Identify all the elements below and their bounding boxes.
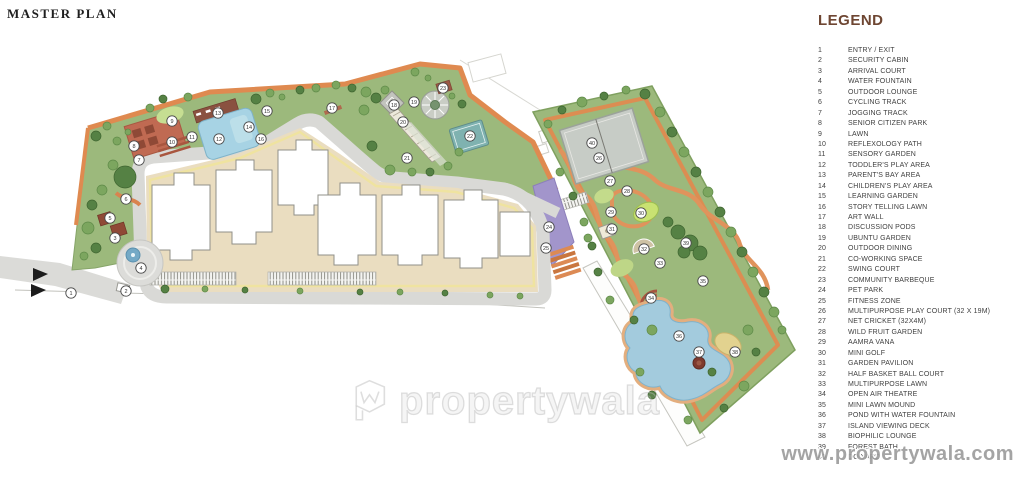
- legend-item-label: STORY TELLING LAWN: [848, 203, 1016, 213]
- tree-icon: [693, 246, 707, 260]
- plan-marker-6: 6: [121, 194, 131, 204]
- legend-item-label: CHILDREN'S PLAY AREA: [848, 182, 1016, 192]
- svg-text:16: 16: [258, 137, 264, 143]
- svg-text:2: 2: [124, 289, 127, 295]
- legend-row: 13 PARENT'S BAY AREA: [818, 171, 1016, 181]
- tree-icon: [769, 307, 779, 317]
- svg-text:35: 35: [700, 279, 706, 285]
- legend-row: 6 CYCLING TRACK: [818, 98, 1016, 108]
- plan-marker-14: 14: [244, 122, 254, 132]
- legend-item-number: 11: [818, 150, 848, 160]
- tree-icon: [146, 104, 154, 112]
- svg-text:14: 14: [246, 125, 252, 131]
- legend-item-label: PET PARK: [848, 286, 1016, 296]
- tree-icon: [371, 93, 381, 103]
- tree-icon: [752, 348, 760, 356]
- tree-icon: [703, 187, 713, 197]
- legend-item-label: TODDLER'S PLAY AREA: [848, 161, 1016, 171]
- legend-row: 17 ART WALL: [818, 213, 1016, 223]
- tree-icon: [397, 289, 403, 295]
- legend-row: 22 SWING COURT: [818, 265, 1016, 275]
- legend-item-number: 38: [818, 432, 848, 442]
- plan-marker-25: 25: [541, 243, 551, 253]
- tree-icon: [778, 326, 786, 334]
- tree-icon: [726, 227, 736, 237]
- legend-item-number: 23: [818, 276, 848, 286]
- tree-icon: [594, 268, 602, 276]
- plan-marker-2: 2: [121, 286, 131, 296]
- tree-icon: [679, 147, 689, 157]
- tree-icon: [584, 234, 592, 242]
- tree-icon: [426, 168, 434, 176]
- tree-icon: [91, 131, 101, 141]
- tree-icon: [242, 287, 248, 293]
- legend-item-number: 14: [818, 182, 848, 192]
- tree-icon: [556, 168, 564, 176]
- legend-item-number: 20: [818, 244, 848, 254]
- tree-icon: [87, 200, 97, 210]
- plan-marker-1: 1: [66, 288, 76, 298]
- svg-text:10: 10: [169, 140, 175, 146]
- plan-marker-34: 34: [646, 293, 656, 303]
- plan-marker-31: 31: [607, 224, 617, 234]
- svg-text:39: 39: [683, 241, 689, 247]
- svg-text:34: 34: [648, 296, 654, 302]
- svg-text:19: 19: [411, 100, 417, 106]
- hedge-row: [268, 272, 376, 285]
- master-plan-svg: 1234567891011121314151617181920212223242…: [0, 0, 812, 480]
- tree-icon: [708, 368, 716, 376]
- tree-icon: [715, 207, 725, 217]
- legend-item-label: NET CRICKET (32X4M): [848, 317, 1016, 327]
- tree-icon: [720, 404, 728, 412]
- tree-icon: [91, 243, 101, 253]
- legend-item-label: SWING COURT: [848, 265, 1016, 275]
- exit-arrow-icon: [31, 284, 46, 297]
- svg-text:17: 17: [329, 106, 335, 112]
- legend-row: 3 ARRIVAL COURT: [818, 67, 1016, 77]
- svg-text:38: 38: [732, 350, 738, 356]
- svg-text:32: 32: [641, 247, 647, 253]
- legend-item-label: POND WITH WATER FOUNTAIN: [848, 411, 1016, 421]
- tree-icon: [297, 288, 303, 294]
- legend-item-number: 34: [818, 390, 848, 400]
- tree-icon: [455, 148, 463, 156]
- legend-item-number: 29: [818, 338, 848, 348]
- tree-icon: [636, 368, 644, 376]
- legend-row: 38 BIOPHILIC LOUNGE: [818, 432, 1016, 442]
- legend-item-label: CO-WORKING SPACE: [848, 255, 1016, 265]
- legend-row: 12 TODDLER'S PLAY AREA: [818, 161, 1016, 171]
- legend-row: 35 MINI LAWN MOUND: [818, 401, 1016, 411]
- tree-icon: [748, 267, 758, 277]
- svg-text:27: 27: [607, 179, 613, 185]
- legend-item-number: 30: [818, 349, 848, 359]
- tree-icon: [569, 192, 577, 200]
- svg-text:13: 13: [215, 111, 221, 117]
- legend-item-label: ISLAND VIEWING DECK: [848, 422, 1016, 432]
- tree-icon: [667, 127, 677, 137]
- legend-row: 31 GARDEN PAVILION: [818, 359, 1016, 369]
- tree-icon: [82, 222, 94, 234]
- tree-icon: [367, 141, 377, 151]
- tree-icon: [684, 416, 692, 424]
- site-plan: 1234567891011121314151617181920212223242…: [0, 0, 812, 480]
- tree-icon: [359, 105, 369, 115]
- legend-row: 11 SENSORY GARDEN: [818, 150, 1016, 160]
- tree-icon: [184, 93, 192, 101]
- tree-icon: [739, 381, 749, 391]
- legend-row: 26 MULTIPURPOSE PLAY COURT (32 X 19M): [818, 307, 1016, 317]
- tree-icon: [251, 94, 261, 104]
- tree-icon: [655, 107, 665, 117]
- tree-icon: [108, 160, 118, 170]
- svg-text:20: 20: [400, 120, 406, 126]
- plan-marker-20: 20: [398, 117, 408, 127]
- tree-icon: [622, 86, 630, 94]
- legend-row: 23 COMMUNITY BARBEQUE: [818, 276, 1016, 286]
- plan-marker-39: 39: [681, 238, 691, 248]
- tree-icon: [691, 167, 701, 177]
- tree-icon: [487, 292, 493, 298]
- master-plan-page: { "page": { "title": "MASTER PLAN" }, "l…: [0, 0, 1020, 480]
- building: [444, 190, 498, 268]
- legend-row: 16 STORY TELLING LAWN: [818, 203, 1016, 213]
- legend-row: 20 OUTDOOR DINING: [818, 244, 1016, 254]
- plan-marker-36: 36: [674, 331, 684, 341]
- svg-text:24: 24: [546, 225, 552, 231]
- legend-rows: 1 ENTRY / EXIT 2 SECURITY CABIN 3 ARRIVA…: [818, 46, 1016, 464]
- legend-item-number: 8: [818, 119, 848, 129]
- legend-item-number: 12: [818, 161, 848, 171]
- svg-text:6: 6: [124, 197, 127, 203]
- building: [500, 212, 530, 256]
- svg-text:4: 4: [139, 266, 142, 272]
- hedge-row: [150, 272, 236, 285]
- plan-marker-9: 9: [167, 116, 177, 126]
- tree-icon: [357, 289, 363, 295]
- plan-marker-5: 5: [105, 213, 115, 223]
- tree-icon: [558, 106, 566, 114]
- plan-marker-38: 38: [730, 347, 740, 357]
- plan-marker-32: 32: [639, 244, 649, 254]
- legend-item-number: 1: [818, 46, 848, 56]
- legend-item-number: 4: [818, 77, 848, 87]
- tree-icon: [759, 287, 769, 297]
- plan-marker-15: 15: [262, 106, 272, 116]
- tree-icon: [647, 325, 657, 335]
- legend-row: 39 FOREST BATH: [818, 443, 1016, 453]
- legend-item-number: 17: [818, 213, 848, 223]
- tree-icon: [361, 87, 371, 97]
- legend-row: 18 DISCUSSION PODS: [818, 223, 1016, 233]
- plan-marker-10: 10: [167, 137, 177, 147]
- legend-item-label: JOGGING TRACK: [848, 109, 1016, 119]
- legend-item-label: LEARNING GARDEN: [848, 192, 1016, 202]
- legend-title: LEGEND: [818, 12, 1016, 29]
- legend-row: 1 ENTRY / EXIT: [818, 46, 1016, 56]
- legend-item-number: 36: [818, 411, 848, 421]
- svg-text:37: 37: [696, 350, 702, 356]
- tree-icon: [266, 89, 274, 97]
- legend-item-number: 13: [818, 171, 848, 181]
- tree-icon: [606, 296, 614, 304]
- tree-icon: [411, 68, 419, 76]
- legend-row: 34 OPEN AIR THEATRE: [818, 390, 1016, 400]
- tree-icon: [332, 81, 340, 89]
- tree-icon: [114, 166, 136, 188]
- svg-text:1: 1: [69, 291, 72, 297]
- ubuntu-garden-plaza: [421, 91, 449, 119]
- tree-icon: [296, 86, 304, 94]
- svg-text:5: 5: [108, 216, 111, 222]
- legend-item-label: SECURITY CABIN: [848, 56, 1016, 66]
- legend-item-label: HALF BASKET BALL COURT: [848, 370, 1016, 380]
- legend-item-label: PARENT'S BAY AREA: [848, 171, 1016, 181]
- legend-row: 36 POND WITH WATER FOUNTAIN: [818, 411, 1016, 421]
- plan-marker-30: 30: [636, 208, 646, 218]
- building: [382, 185, 438, 265]
- svg-text:15: 15: [264, 109, 270, 115]
- legend-row: 28 WILD FRUIT GARDEN: [818, 328, 1016, 338]
- legend-row: 32 HALF BASKET BALL COURT: [818, 370, 1016, 380]
- legend-item-number: 18: [818, 223, 848, 233]
- tree-icon: [577, 97, 587, 107]
- legend-row: 33 MULTIPURPOSE LAWN: [818, 380, 1016, 390]
- tree-icon: [113, 137, 121, 145]
- legend-item-label: OPEN AIR THEATRE: [848, 390, 1016, 400]
- tree-icon: [312, 84, 320, 92]
- tree-icon: [97, 185, 107, 195]
- legend-item-number: 35: [818, 401, 848, 411]
- legend-item-number: 28: [818, 328, 848, 338]
- plan-marker-22: 22: [465, 131, 475, 141]
- legend-item-number: 39: [818, 443, 848, 453]
- plan-marker-17: 17: [327, 103, 337, 113]
- legend-row: 4 WATER FOUNTAIN: [818, 77, 1016, 87]
- legend-row: 27 NET CRICKET (32X4M): [818, 317, 1016, 327]
- legend-item-number: 21: [818, 255, 848, 265]
- plan-marker-3: 3: [110, 233, 120, 243]
- plan-marker-8: 8: [129, 141, 139, 151]
- tree-icon: [385, 165, 395, 175]
- svg-text:40: 40: [589, 141, 595, 147]
- legend-item-label: REFLEXOLOGY PATH: [848, 140, 1016, 150]
- plan-marker-37: 37: [694, 347, 704, 357]
- legend-row: 15 LEARNING GARDEN: [818, 192, 1016, 202]
- legend-item-label: WATER FOUNTAIN: [848, 77, 1016, 87]
- tree-icon: [381, 86, 389, 94]
- tree-icon: [279, 94, 285, 100]
- legend-item-label: WILD FRUIT GARDEN: [848, 328, 1016, 338]
- legend-item-number: 5: [818, 88, 848, 98]
- svg-text:7: 7: [137, 158, 140, 164]
- legend-item-number: 10: [818, 140, 848, 150]
- tree-icon: [458, 100, 466, 108]
- tree-icon: [663, 217, 673, 227]
- plan-marker-12: 12: [214, 134, 224, 144]
- tree-icon: [737, 247, 747, 257]
- building: [152, 173, 210, 260]
- tree-icon: [600, 92, 608, 100]
- legend-item-label: ART WALL: [848, 213, 1016, 223]
- plan-marker-27: 27: [605, 176, 615, 186]
- legend-row: 14 CHILDREN'S PLAY AREA: [818, 182, 1016, 192]
- legend-row: 9 LAWN: [818, 130, 1016, 140]
- plan-marker-13: 13: [213, 108, 223, 118]
- tree-icon: [444, 162, 452, 170]
- tree-icon: [671, 225, 685, 239]
- legend-row: 37 ISLAND VIEWING DECK: [818, 422, 1016, 432]
- legend-item-label: BIOPHILIC LOUNGE: [848, 432, 1016, 442]
- building: [216, 160, 272, 244]
- tree-icon: [202, 286, 208, 292]
- legend-item-number: 33: [818, 380, 848, 390]
- legend-item-number: 22: [818, 265, 848, 275]
- legend-item-label: OUTDOOR LOUNGE: [848, 88, 1016, 98]
- legend-row: 2 SECURITY CABIN: [818, 56, 1016, 66]
- legend-row: 21 CO-WORKING SPACE: [818, 255, 1016, 265]
- tree-icon: [640, 89, 650, 99]
- tree-icon: [517, 293, 523, 299]
- legend-item-label: MULTIPURPOSE PLAY COURT (32 X 19M): [848, 307, 1016, 317]
- legend-row: 10 REFLEXOLOGY PATH: [818, 140, 1016, 150]
- legend-item-label: SENSORY GARDEN: [848, 150, 1016, 160]
- legend-row: 25 FITNESS ZONE: [818, 297, 1016, 307]
- svg-text:23: 23: [440, 86, 446, 92]
- legend-item-number: 3: [818, 67, 848, 77]
- svg-text:33: 33: [657, 261, 663, 267]
- tree-icon: [544, 120, 552, 128]
- plan-marker-35: 35: [698, 276, 708, 286]
- plan-marker-4: 4: [136, 263, 146, 273]
- plan-marker-33: 33: [655, 258, 665, 268]
- tree-icon: [348, 84, 356, 92]
- legend-item-label: FITNESS ZONE: [848, 297, 1016, 307]
- building: [318, 183, 376, 265]
- plan-marker-18: 18: [389, 100, 399, 110]
- svg-text:11: 11: [189, 135, 195, 141]
- tree-icon: [161, 285, 169, 293]
- plan-marker-7: 7: [134, 155, 144, 165]
- legend-row: 40 DO YARD: [818, 453, 1016, 463]
- legend-item-number: 27: [818, 317, 848, 327]
- svg-text:26: 26: [596, 156, 602, 162]
- svg-text:18: 18: [391, 103, 397, 109]
- legend-item-label: DISCUSSION PODS: [848, 223, 1016, 233]
- tree-icon: [442, 290, 448, 296]
- legend-item-number: 37: [818, 422, 848, 432]
- tree-icon: [449, 93, 455, 99]
- legend-item-label: MULTIPURPOSE LAWN: [848, 380, 1016, 390]
- legend-item-label: UBUNTU GARDEN: [848, 234, 1016, 244]
- svg-text:31: 31: [609, 227, 615, 233]
- legend-item-number: 32: [818, 370, 848, 380]
- tree-icon: [80, 252, 88, 260]
- plan-marker-19: 19: [409, 97, 419, 107]
- legend-row: 8 SENIOR CITIZEN PARK: [818, 119, 1016, 129]
- legend-item-label: FOREST BATH: [848, 443, 1016, 453]
- tree-icon: [125, 129, 131, 135]
- svg-text:8: 8: [132, 144, 135, 150]
- legend-item-number: 31: [818, 359, 848, 369]
- plan-marker-29: 29: [606, 207, 616, 217]
- legend-item-number: 9: [818, 130, 848, 140]
- legend-row: 5 OUTDOOR LOUNGE: [818, 88, 1016, 98]
- tree-icon: [408, 168, 416, 176]
- legend-item-label: AAMRA VANA: [848, 338, 1016, 348]
- legend-item-label: COMMUNITY BARBEQUE: [848, 276, 1016, 286]
- tree-icon: [580, 218, 588, 226]
- tree-icon: [630, 316, 638, 324]
- legend-row: 29 AAMRA VANA: [818, 338, 1016, 348]
- svg-text:22: 22: [467, 134, 473, 140]
- legend-row: 30 MINI GOLF: [818, 349, 1016, 359]
- legend-item-number: 25: [818, 297, 848, 307]
- svg-text:28: 28: [624, 189, 630, 195]
- svg-text:36: 36: [676, 334, 682, 340]
- legend-item-label: SENIOR CITIZEN PARK: [848, 119, 1016, 129]
- legend-item-label: DO YARD: [848, 453, 1016, 463]
- legend-row: 7 JOGGING TRACK: [818, 109, 1016, 119]
- legend-item-number: 6: [818, 98, 848, 108]
- plan-marker-24: 24: [544, 222, 554, 232]
- svg-text:21: 21: [404, 156, 410, 162]
- tree-icon: [103, 122, 111, 130]
- legend-item-label: GARDEN PAVILION: [848, 359, 1016, 369]
- svg-text:12: 12: [216, 137, 222, 143]
- legend-item-label: MINI LAWN MOUND: [848, 401, 1016, 411]
- plan-marker-28: 28: [622, 186, 632, 196]
- plan-marker-26: 26: [594, 153, 604, 163]
- tree-icon: [588, 242, 596, 250]
- tree-icon: [743, 325, 753, 335]
- plan-marker-23: 23: [438, 83, 448, 93]
- svg-text:25: 25: [543, 246, 549, 252]
- legend-item-number: 7: [818, 109, 848, 119]
- legend-item-number: 16: [818, 203, 848, 213]
- svg-text:29: 29: [608, 210, 614, 216]
- plan-marker-16: 16: [256, 134, 266, 144]
- legend-panel: LEGEND 1 ENTRY / EXIT 2 SECURITY CABIN 3…: [818, 12, 1016, 464]
- legend-item-number: 15: [818, 192, 848, 202]
- legend-item-label: ARRIVAL COURT: [848, 67, 1016, 77]
- tree-icon: [648, 391, 656, 399]
- legend-item-label: ENTRY / EXIT: [848, 46, 1016, 56]
- legend-item-label: MINI GOLF: [848, 349, 1016, 359]
- plan-marker-21: 21: [402, 153, 412, 163]
- legend-row: 24 PET PARK: [818, 286, 1016, 296]
- plan-marker-11: 11: [187, 132, 197, 142]
- legend-item-number: 2: [818, 56, 848, 66]
- legend-row: 19 UBUNTU GARDEN: [818, 234, 1016, 244]
- svg-text:9: 9: [170, 119, 173, 125]
- plan-marker-40: 40: [587, 138, 597, 148]
- svg-text:30: 30: [638, 211, 644, 217]
- legend-item-label: OUTDOOR DINING: [848, 244, 1016, 254]
- tree-icon: [159, 95, 167, 103]
- legend-item-label: LAWN: [848, 130, 1016, 140]
- tree-icon: [425, 75, 431, 81]
- legend-item-number: 19: [818, 234, 848, 244]
- legend-item-number: 26: [818, 307, 848, 317]
- legend-item-label: CYCLING TRACK: [848, 98, 1016, 108]
- legend-item-number: 24: [818, 286, 848, 296]
- legend-item-number: 40: [818, 453, 848, 463]
- svg-text:3: 3: [113, 236, 116, 242]
